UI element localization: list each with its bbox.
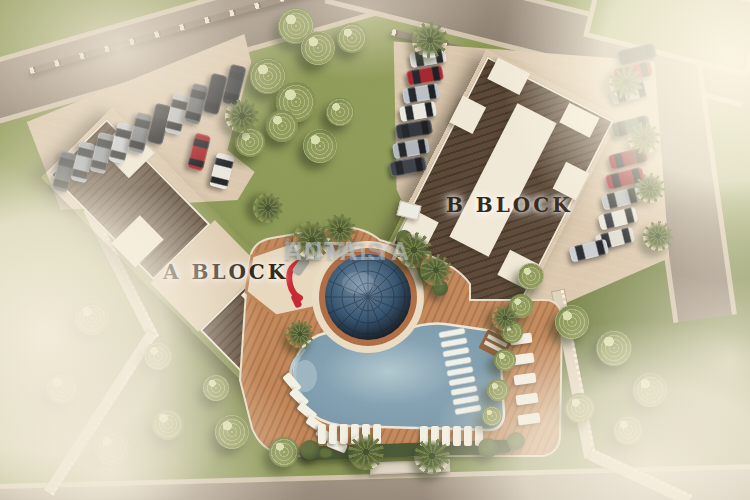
hedge-shrub xyxy=(478,438,498,458)
label-a-block: A BLOCK xyxy=(163,260,288,284)
palm-tree xyxy=(630,168,671,209)
garden-tree xyxy=(46,372,78,404)
palm-tree xyxy=(410,434,454,478)
palm-tree xyxy=(643,221,673,251)
garden-tree xyxy=(95,431,129,465)
garden-tree xyxy=(215,415,249,449)
watermark-reg-mark: ® xyxy=(284,237,293,247)
site-plan-rendering: A BLOCK B BLOCK ANTALYAHOMES® xyxy=(0,0,750,500)
garden-tree xyxy=(326,98,354,126)
hedge-shrub xyxy=(507,432,525,450)
palm-tree xyxy=(247,187,289,229)
garden-tree xyxy=(494,349,516,371)
garden-tree xyxy=(482,406,502,426)
garden-tree xyxy=(75,301,109,335)
palm-tree xyxy=(605,61,647,103)
garden-tree xyxy=(303,129,337,163)
garden-tree xyxy=(203,375,229,401)
garden-tree xyxy=(633,373,667,407)
garden-tree xyxy=(144,342,172,370)
palm-tree xyxy=(284,318,316,350)
garden-tree xyxy=(596,330,632,366)
garden-tree xyxy=(269,437,299,467)
garden-tree xyxy=(337,23,367,53)
garden-tree xyxy=(266,110,298,142)
garden-tree xyxy=(487,379,509,401)
palm-tree xyxy=(412,22,448,58)
label-b-block: B BLOCK xyxy=(446,193,573,217)
garden-tree xyxy=(301,31,335,65)
garden-tree xyxy=(555,305,589,339)
garden-tree xyxy=(152,408,184,440)
palm-tree xyxy=(346,432,387,473)
watermark-text-right: HOMES xyxy=(284,237,386,266)
garden-tree xyxy=(613,415,643,445)
hedge-shrub xyxy=(300,440,320,460)
palm-tree xyxy=(623,117,664,158)
garden-tree xyxy=(518,263,544,289)
garden-tree xyxy=(565,393,595,423)
